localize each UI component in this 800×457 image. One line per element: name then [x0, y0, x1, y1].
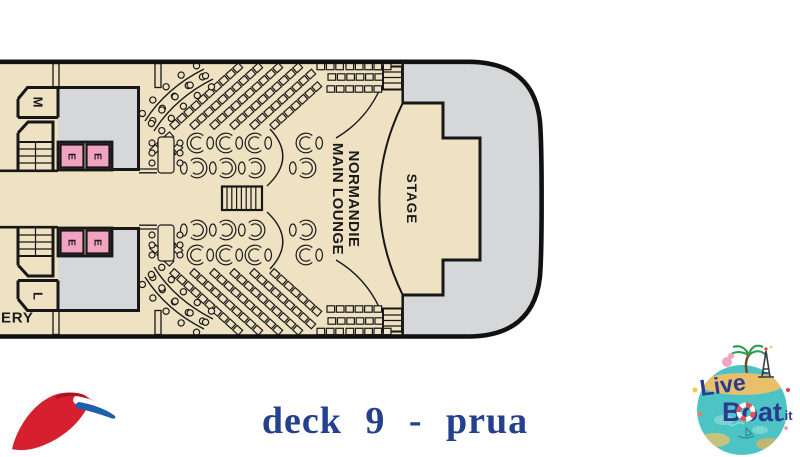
- seat: [337, 74, 345, 80]
- confetti: [698, 412, 702, 416]
- table: [265, 137, 272, 149]
- seat: [356, 74, 364, 80]
- seat: [365, 63, 373, 69]
- stool: [177, 140, 183, 146]
- chair: [159, 107, 165, 113]
- elevator-label: E: [91, 239, 103, 246]
- room-m-label: M: [31, 97, 46, 108]
- liveboat-tld: .it: [781, 408, 793, 423]
- stool: [177, 150, 183, 156]
- stage-label: STAGE: [404, 174, 419, 225]
- deck-plan-figure: E E E E M L ERY NORMANDIE MAIN LOUNGE ST…: [0, 0, 800, 457]
- seat: [336, 86, 344, 92]
- room-l-label: L: [31, 292, 46, 300]
- elevator-label: E: [65, 153, 77, 160]
- chair: [168, 115, 174, 121]
- seat-row: [317, 63, 343, 69]
- seat: [326, 63, 334, 69]
- seat: [355, 63, 363, 69]
- confetti: [693, 388, 698, 393]
- table: [236, 137, 243, 149]
- chair: [208, 84, 214, 90]
- bar-counter: [158, 137, 174, 173]
- chair: [202, 73, 208, 79]
- seat: [347, 74, 355, 80]
- chair: [159, 128, 165, 134]
- seat: [365, 86, 373, 92]
- seat: [374, 86, 382, 92]
- confetti: [786, 388, 790, 392]
- seat: [336, 63, 344, 69]
- chair: [194, 92, 200, 98]
- lounge-name-line2: MAIN LOUNGE: [329, 143, 346, 255]
- stool: [149, 160, 155, 166]
- elevator-label: E: [91, 153, 103, 160]
- seat: [346, 63, 354, 69]
- gallery-partial-label: ERY: [1, 310, 34, 327]
- chair: [148, 120, 154, 126]
- lounge-name-line1: NORMANDIE: [345, 151, 362, 248]
- table: [238, 162, 245, 174]
- pink-decoration: [728, 353, 734, 359]
- seat: [355, 86, 363, 92]
- chair: [180, 103, 186, 109]
- confetti: [784, 426, 788, 430]
- stool: [149, 150, 155, 156]
- stool: [177, 160, 183, 166]
- chair: [172, 94, 178, 100]
- seat: [317, 63, 325, 69]
- seat: [375, 74, 383, 80]
- seat: [328, 74, 336, 80]
- seat: [366, 74, 374, 80]
- chair: [163, 84, 169, 90]
- table: [207, 137, 214, 149]
- liveboat-globe-logo: Live Boat .it: [693, 346, 794, 455]
- chair: [187, 82, 193, 88]
- seat: [374, 63, 382, 69]
- chair: [150, 97, 156, 103]
- table: [289, 162, 296, 174]
- page: E E E E M L ERY NORMANDIE MAIN LOUNGE ST…: [0, 0, 800, 457]
- table: [210, 162, 217, 174]
- carnival-funnel-logo: [12, 393, 115, 450]
- seat: [346, 86, 354, 92]
- table: [316, 137, 323, 149]
- chair: [178, 72, 184, 78]
- seat: [327, 86, 335, 92]
- center-stair-treads: [227, 187, 256, 211]
- stool: [149, 140, 155, 146]
- elevator-label: E: [65, 239, 77, 246]
- deck-caption: deck 9 - prua: [262, 400, 528, 442]
- seat: [383, 63, 391, 69]
- chair: [139, 110, 145, 116]
